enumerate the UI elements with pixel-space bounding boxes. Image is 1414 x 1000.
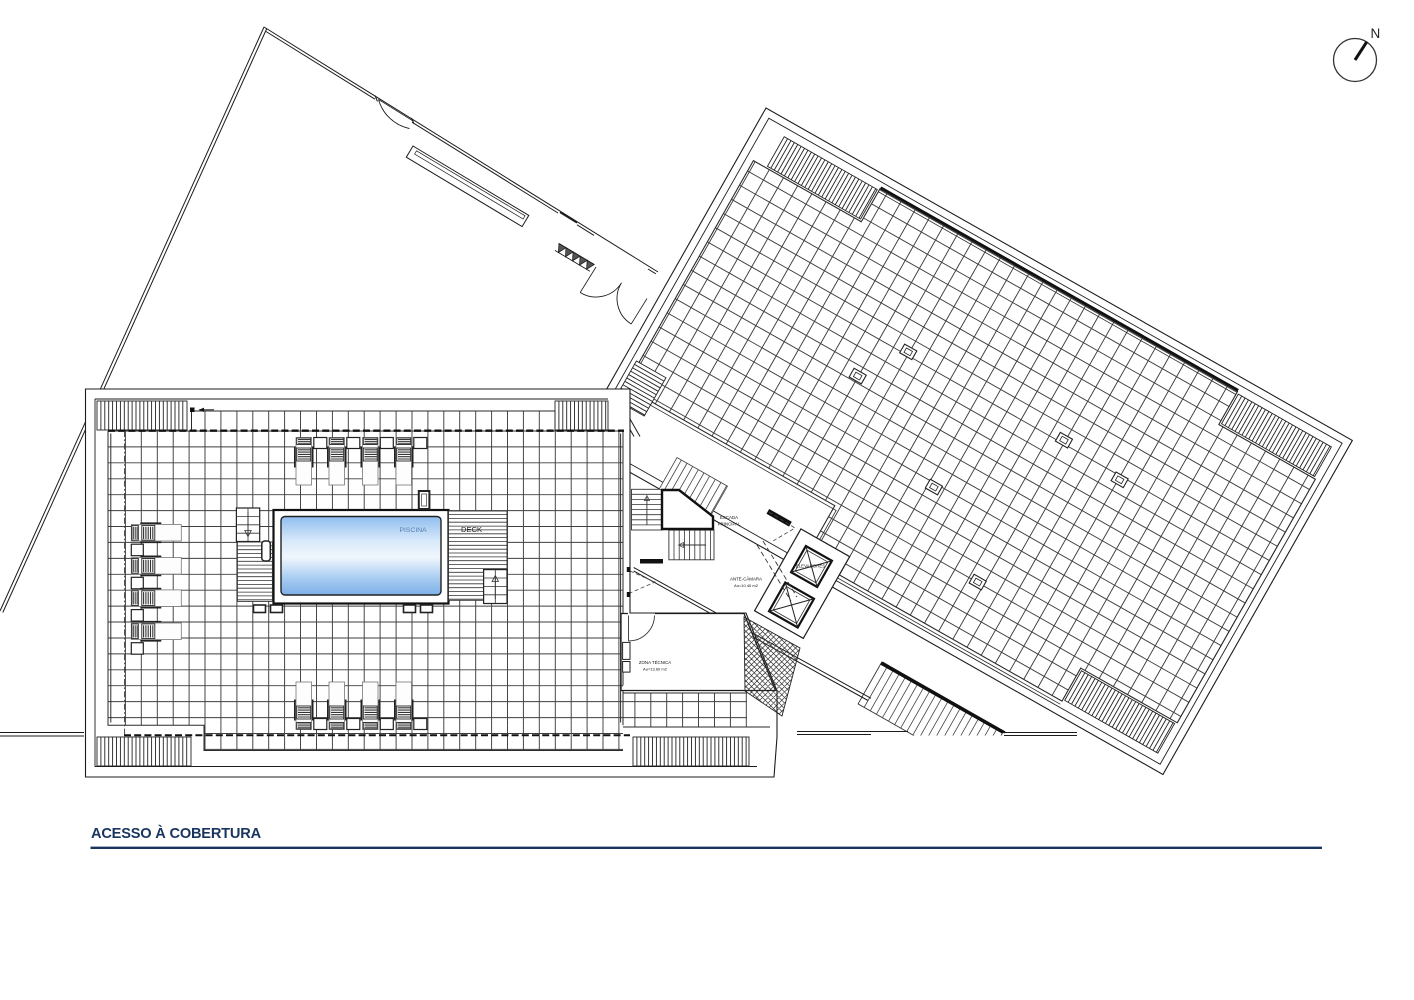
svg-text:N: N — [1371, 26, 1381, 41]
svg-text:ESCADA: ESCADA — [720, 515, 738, 520]
svg-text:Au=13.60 m2: Au=13.60 m2 — [643, 667, 668, 672]
svg-text:Au=10.40 m2: Au=10.40 m2 — [734, 583, 759, 588]
svg-text:PRINCIPAL: PRINCIPAL — [718, 522, 741, 527]
svg-text:ACESSO À COBERTURA: ACESSO À COBERTURA — [91, 825, 262, 842]
svg-text:DECK: DECK — [461, 525, 482, 534]
svg-text:ANTE-CÂMARA: ANTE-CÂMARA — [730, 577, 762, 582]
svg-text:ELEVADORES: ELEVADORES — [796, 564, 826, 569]
svg-text:ZONA TÉCNICA: ZONA TÉCNICA — [639, 660, 671, 665]
svg-text:PISCINA: PISCINA — [400, 527, 428, 534]
